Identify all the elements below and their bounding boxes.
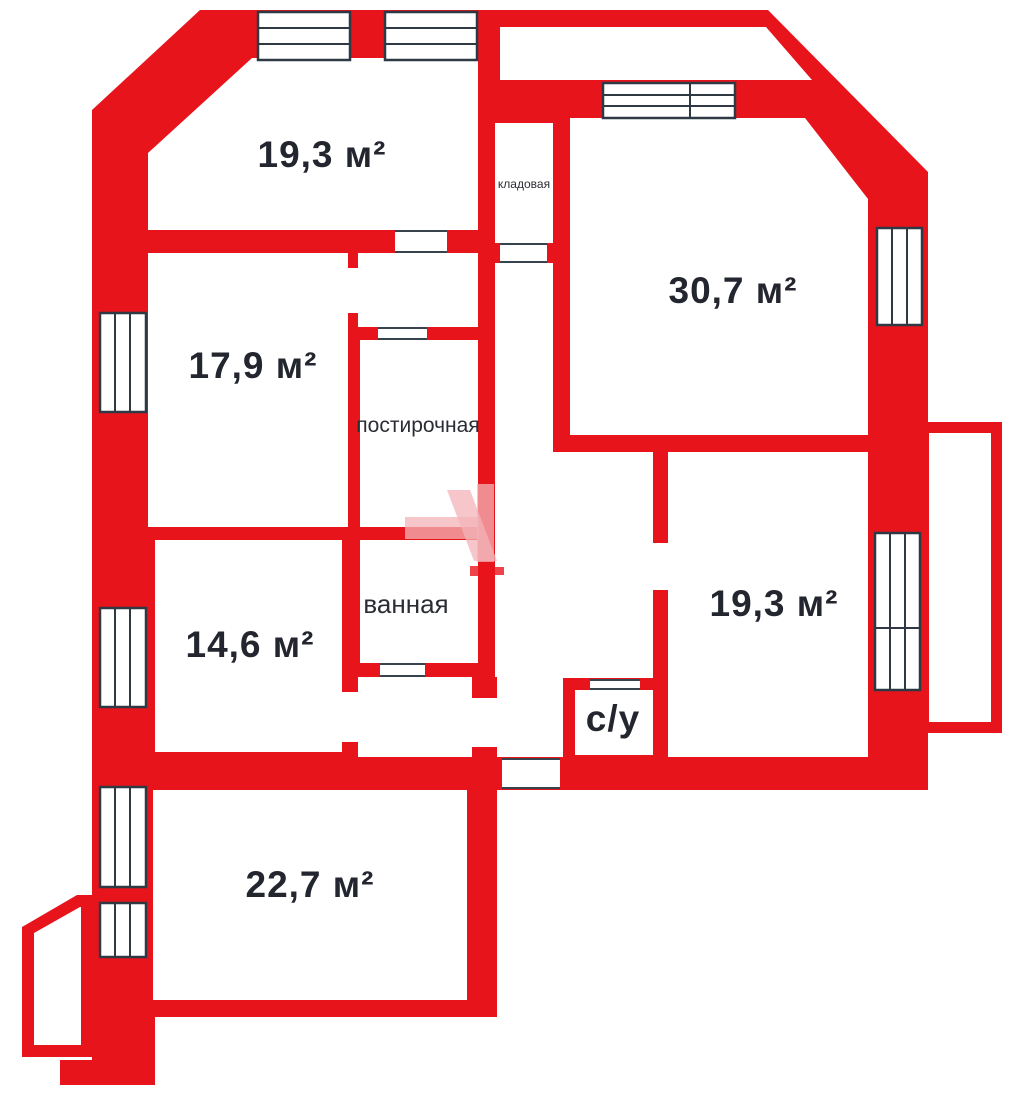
window [100,608,146,707]
room-mid-left-floor [148,253,348,527]
door-opening [500,243,547,263]
balcony-right-floor [929,433,991,722]
window [100,313,146,412]
door-opening [380,663,425,677]
window [385,12,477,60]
window [877,228,922,325]
wall-stub [60,1060,97,1085]
storage-label: кладовая [498,177,550,191]
window [603,83,735,118]
window [875,533,920,690]
hall-upper-floor [358,253,478,327]
door-opening [378,327,427,340]
window [100,903,146,957]
wall-patch [472,677,497,698]
terrace-top-floor [500,27,812,80]
bath-label: ванная [363,589,448,619]
door-opening [472,698,497,747]
room-label-top-left: 19,3 м² [258,134,387,175]
hall-strip-floor [495,263,553,452]
room-label-lower-left: 14,6 м² [186,624,315,665]
window [100,787,146,887]
room-label-bottom: 22,7 м² [246,864,375,905]
laundry-label: постирочная [356,414,479,437]
room-label-mid-left: 17,9 м² [189,345,318,386]
room-label-top-right: 30,7 м² [669,270,798,311]
door-opening [342,692,358,742]
floor-plan: 19,3 м² 30,7 м² 17,9 м² 14,6 м² 19,3 м² … [0,0,1024,1101]
door-opening [651,543,670,590]
entrance-door-opening [502,758,560,789]
floor-plan-canvas: 19,3 м² 30,7 м² 17,9 м² 14,6 м² 19,3 м² … [0,0,1024,1101]
wall-patch [472,747,497,757]
window [258,12,350,60]
room-label-right: 19,3 м² [710,583,839,624]
door-opening [395,230,447,253]
door-opening [344,268,360,313]
wc-label: с/у [586,698,640,739]
door-opening [590,679,640,690]
